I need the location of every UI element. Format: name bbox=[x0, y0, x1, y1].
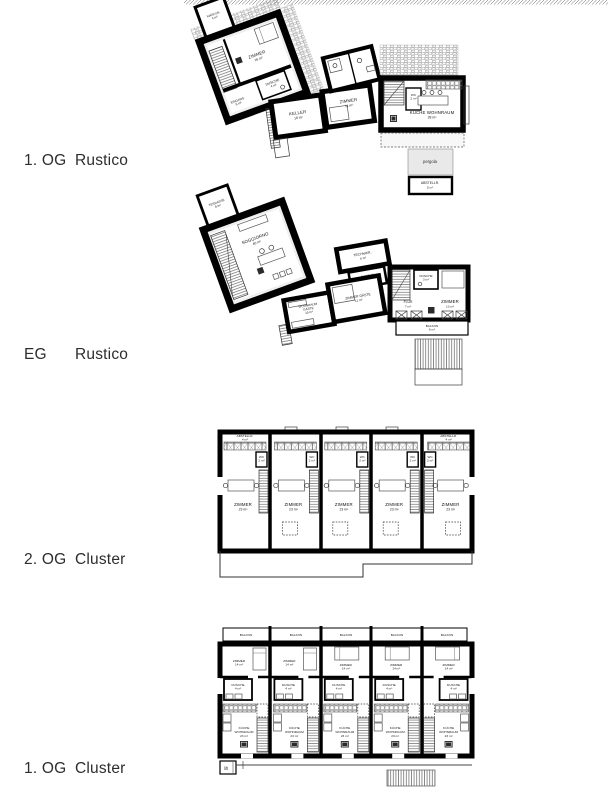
floor-label-og2-cluster: 2. OG Cluster bbox=[24, 551, 126, 569]
table bbox=[438, 480, 464, 491]
floor-name: Cluster bbox=[75, 760, 126, 778]
table bbox=[278, 480, 304, 491]
kitchen-counter bbox=[436, 704, 469, 712]
room-area: 23 m² bbox=[391, 734, 399, 738]
room-area: 5 m² bbox=[427, 185, 433, 189]
plan-og2-cluster: ABSTELLR. 4 m² WC 2 m² ZIMMER 23 m² WC 2… bbox=[210, 425, 480, 585]
room-area: 2 m² bbox=[359, 458, 365, 462]
room-label: pergola bbox=[423, 159, 438, 164]
bed bbox=[335, 647, 359, 660]
room-label: ZIMMER bbox=[385, 502, 403, 507]
stairs bbox=[360, 470, 369, 513]
balkon-label: BALKON bbox=[240, 633, 253, 637]
table bbox=[418, 96, 448, 105]
room-area: 14 m² bbox=[235, 663, 243, 667]
room-area: 4 m² bbox=[235, 687, 241, 691]
room-area: 6 m² bbox=[429, 328, 435, 332]
room-area: 2 m² bbox=[258, 458, 264, 462]
floor-level: 1. OG bbox=[24, 760, 75, 778]
outline-area bbox=[415, 369, 462, 385]
room-area: 23 m² bbox=[341, 734, 349, 738]
room-area: 4 m² bbox=[451, 687, 457, 691]
kitchen-counter bbox=[374, 704, 407, 712]
terrace-dashed bbox=[381, 133, 464, 147]
floor-level: 1. OG bbox=[24, 152, 75, 170]
room-area: 4 m² bbox=[285, 687, 291, 691]
room-area: 14 m² bbox=[342, 667, 350, 671]
floor-label-eg-rustico: EG Rustico bbox=[24, 346, 128, 364]
room-area: 23 m² bbox=[289, 507, 299, 511]
stairs bbox=[259, 470, 268, 513]
kitchen-counter bbox=[426, 80, 462, 89]
stairs bbox=[257, 718, 268, 752]
stairs bbox=[410, 470, 419, 513]
unit-badge bbox=[428, 307, 435, 314]
room-area: 14 m² bbox=[392, 667, 400, 671]
room-area: 2 m² bbox=[427, 458, 433, 462]
room-area: 23 m² bbox=[390, 507, 400, 511]
stairs bbox=[408, 718, 419, 752]
room-area: 23 m² bbox=[239, 507, 249, 511]
bed bbox=[253, 648, 266, 670]
room-area: 3 m² bbox=[423, 278, 429, 282]
room-area: 2 m² bbox=[410, 96, 416, 100]
room-label: ZIMMER bbox=[335, 502, 353, 507]
room-area: 4 m² bbox=[386, 687, 392, 691]
room-area: 4 m² bbox=[242, 437, 248, 441]
stairs bbox=[424, 718, 435, 752]
room-area: 23 m² bbox=[446, 507, 456, 511]
stairs bbox=[307, 718, 318, 752]
balkon-label: BALKON bbox=[290, 633, 303, 637]
room-label: ZIMMER bbox=[441, 299, 459, 304]
plan-eg-rustico: TERRASSE 8 m² SOGGIORNO 40 m² TECHNIKR. … bbox=[180, 200, 490, 395]
shower bbox=[328, 58, 343, 73]
rustico-kitchen-house: WC 2 m² KÜCHE WOHNRAUM 28 m² pergola ABS… bbox=[380, 45, 469, 194]
floor-level: EG bbox=[24, 346, 75, 364]
room-label: FLUR bbox=[404, 300, 413, 304]
room-area: 13 m² bbox=[446, 304, 454, 308]
stairs bbox=[358, 718, 369, 752]
plan-og1-rustico: WASCHK. 4 m² ZIMMER 16 m² DUSCHE 4 m² EI… bbox=[180, 0, 613, 205]
room-area: 28 m² bbox=[428, 116, 438, 120]
room-area: 14 m² bbox=[285, 663, 293, 667]
top-cut-hatch bbox=[184, 0, 608, 5]
room-area: 23 m² bbox=[445, 734, 453, 738]
table bbox=[329, 480, 355, 491]
floor-name: Cluster bbox=[75, 551, 126, 569]
hatched-area bbox=[415, 339, 462, 369]
bed bbox=[442, 271, 464, 288]
floor-name: Rustico bbox=[75, 346, 128, 364]
table bbox=[379, 480, 405, 491]
hatched-comb bbox=[387, 770, 435, 786]
floor-label-og1-rustico: 1. OG Rustico bbox=[24, 152, 128, 170]
kitchen-counter bbox=[273, 704, 306, 712]
bed bbox=[332, 284, 354, 303]
bed bbox=[385, 647, 409, 660]
room-area: 23 m² bbox=[290, 734, 298, 738]
room-area: 2 m² bbox=[309, 458, 315, 462]
room-area: 2 m² bbox=[410, 458, 416, 462]
kitchen-counter bbox=[324, 704, 357, 712]
table bbox=[228, 480, 254, 491]
plan-og1-cluster: BALKON BALKON BALKON BALKON BALKON ZIMME… bbox=[210, 620, 480, 798]
floor-level: 2. OG bbox=[24, 551, 75, 569]
ground-outline bbox=[220, 551, 472, 577]
bed bbox=[303, 648, 316, 670]
room-area: 23 m² bbox=[240, 734, 248, 738]
balkon-label: BALKON bbox=[391, 633, 404, 637]
room-label: KÜCHE WOHNRAUM bbox=[410, 110, 455, 115]
bedroom-house-right: DUSCHE 3 m² ZIMMER 13 m² FLUR 7 m² BALKO… bbox=[390, 267, 468, 335]
room-label: ZIMMER bbox=[234, 502, 252, 507]
stairs bbox=[309, 470, 318, 513]
room-area: 23 m² bbox=[339, 507, 349, 511]
bed bbox=[436, 647, 460, 660]
room-label: ABSTELLR. bbox=[421, 181, 439, 185]
room-area: 4 m² bbox=[336, 687, 342, 691]
room-label: ZIMMER bbox=[284, 502, 302, 507]
stairs bbox=[425, 470, 434, 513]
balkon-label: BALKON bbox=[441, 633, 454, 637]
floor-label-og1-cluster: 1. OG Cluster bbox=[24, 760, 126, 778]
room-area: 14 m² bbox=[445, 667, 453, 671]
floor-name: Rustico bbox=[75, 152, 128, 170]
room-area: 7 m² bbox=[405, 304, 411, 308]
stone-terrace bbox=[380, 45, 458, 75]
room-label: ZIMMER bbox=[442, 502, 460, 507]
room-area: 4 m² bbox=[446, 437, 452, 441]
kitchen-counter bbox=[223, 704, 256, 712]
balkon-label: BALKON bbox=[340, 633, 353, 637]
